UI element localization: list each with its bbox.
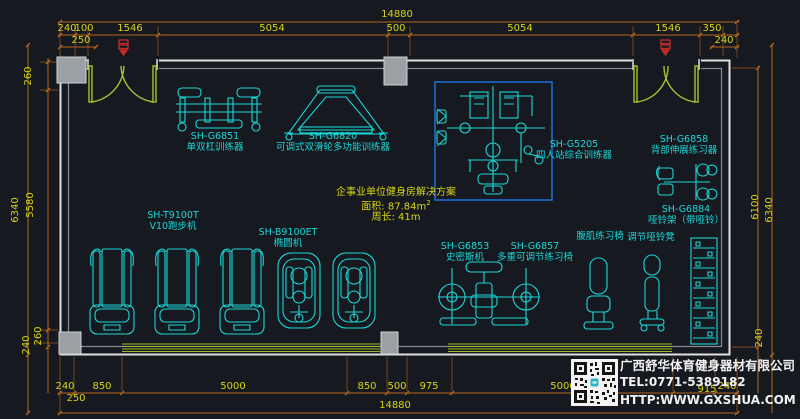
label-dumbbell-bench: 调节哑铃凳	[627, 233, 675, 244]
dim-top-500: 500	[386, 24, 405, 34]
plan-title: 企事业单位健身房解决方案	[336, 187, 456, 199]
dim-bottom-500: 500	[387, 382, 406, 392]
dim-top-sub-250: 250	[71, 36, 90, 46]
adjustable-bench-drawing[interactable]	[584, 258, 613, 329]
name-text: 单双杠训练器	[186, 143, 243, 154]
company-name: 广西舒华体育健身器材有限公司	[620, 358, 796, 374]
dim-left-260-top: 260	[24, 66, 34, 85]
name-text: V10跑步机	[147, 222, 199, 233]
dumbbell-rack-drawing[interactable]	[691, 238, 717, 344]
double-door-right	[634, 66, 698, 102]
four-station-trainer-drawing[interactable]	[437, 86, 545, 194]
dim-overall-top: 14880	[381, 10, 413, 20]
parallel-bars-trainer-drawing[interactable]	[176, 88, 262, 131]
name-text: 多重可调节练习椅	[497, 253, 573, 264]
plan-perimeter: 周长: 41m	[336, 212, 456, 224]
back-extension-trainer-drawing[interactable]	[657, 164, 718, 200]
dim-top-sub-240: 240	[714, 36, 733, 46]
name-text: 调节哑铃凳	[627, 233, 675, 244]
dim-top-1546-left: 1546	[117, 24, 142, 34]
double-door-left	[89, 66, 156, 102]
name-text: 腹肌练习椅	[576, 232, 624, 243]
door-tag-icon	[119, 40, 670, 55]
elliptical-drawings[interactable]	[278, 253, 375, 328]
dim-right-6340: 6340	[765, 197, 775, 222]
dim-top-100: 100	[74, 24, 93, 34]
plan-area-text: 面积: 87.84m	[361, 201, 426, 212]
label-sh-g6884: SH-G6884 哑铃架（带哑铃）	[648, 205, 724, 226]
label-sh-g6857: SH-G6857 多重可调节练习椅	[497, 242, 573, 263]
label-sh-t9100t: SH-T9100T V10跑步机	[147, 211, 199, 232]
company-block: 广西舒华体育健身器材有限公司 TEL:0771-5389182 HTTP:WWW…	[620, 358, 796, 409]
treadmill-drawings[interactable]	[90, 249, 264, 334]
door-opening-right	[632, 56, 701, 70]
name-text: 四人站综合训练器	[536, 151, 612, 162]
plan-info: 企事业单位健身房解决方案 面积: 87.84m2 周长: 41m	[336, 187, 456, 224]
dim-bottom-sub-250: 250	[66, 394, 85, 404]
label-ab-chair: 腹肌练习椅	[576, 232, 624, 243]
dim-bottom-850-mid: 850	[357, 382, 376, 392]
qr-code	[571, 359, 618, 406]
company-tel: TEL:0771-5389182	[620, 374, 796, 391]
dim-top-5054-left: 5054	[259, 24, 284, 34]
cad-floorplan-canvas: 14880 240 100 1546 5054 500 5054 1546 35…	[0, 0, 800, 419]
dim-overall-bottom: 14880	[379, 401, 411, 411]
dim-left-240: 240	[22, 335, 32, 354]
dumbbell-bench-drawing[interactable]	[640, 255, 664, 331]
dim-right-240: 240	[755, 328, 765, 347]
plan-area-sup: 2	[426, 199, 430, 207]
label-sh-g6858: SH-G6858 背部伸展练习器	[651, 135, 718, 156]
label-sh-g5205: SH-G5205 四人站综合训练器	[536, 140, 612, 161]
dim-bottom-5000-left: 5000	[220, 382, 245, 392]
name-text: 背部伸展练习器	[651, 146, 718, 157]
dim-bottom-240-left: 240	[55, 382, 74, 392]
dim-bottom-975: 975	[419, 382, 438, 392]
dim-left-260-bottom: 260	[34, 326, 44, 345]
label-sh-g6853: SH-G6853 史密斯机	[441, 242, 490, 263]
dim-left-6340: 6340	[11, 197, 21, 222]
plan-area: 面积: 87.84m2	[336, 199, 456, 213]
dim-left-5580: 5580	[26, 192, 36, 217]
smith-machine-drawing[interactable]	[438, 262, 540, 325]
company-web: HTTP:WWW.GXSHUA.COM	[620, 392, 796, 409]
dim-top-1546-right: 1546	[655, 24, 680, 34]
label-sh-g6851: SH-G6851 单双杠训练器	[186, 132, 243, 153]
label-sh-g6820: SH-G6820 可调式双滑轮多功能训练器	[276, 132, 390, 153]
dim-top-350: 350	[702, 24, 721, 34]
name-text: 史密斯机	[441, 253, 490, 264]
label-sh-b9100et: SH-B9100ET 椭圆机	[259, 228, 318, 249]
door-opening-left	[87, 56, 159, 70]
name-text: 哑铃架（带哑铃）	[648, 216, 724, 227]
dim-top-5054-right: 5054	[507, 24, 532, 34]
dim-right-6100: 6100	[751, 194, 761, 219]
name-text: 椭圆机	[259, 239, 318, 250]
name-text: 可调式双滑轮多功能训练器	[276, 143, 390, 154]
dim-bottom-850-left: 850	[92, 382, 111, 392]
